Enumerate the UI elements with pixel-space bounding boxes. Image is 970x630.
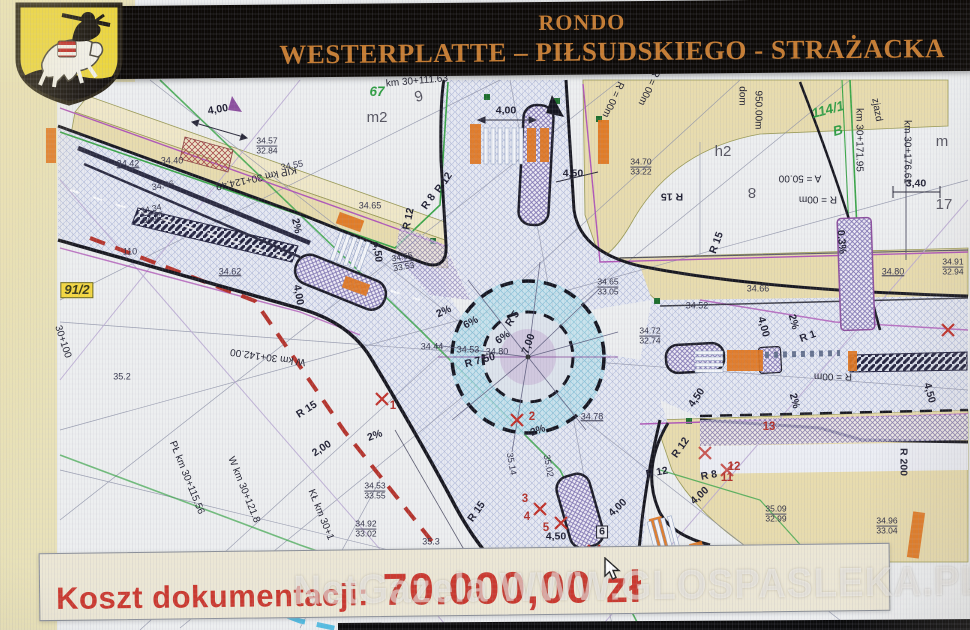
watermark: NetGazela WWW.GLOSPASLEKA.PL	[293, 557, 970, 614]
title-banner: RONDO WESTERPLATTE – PIŁSUDSKIEGO - STRA…	[112, 0, 970, 79]
roundabout-plan-drawing	[0, 0, 970, 630]
photographed-screen: 4,004,004,50R 12R 8R 124,504,002%2%6%6%R…	[0, 0, 970, 630]
city-crest-icon	[12, 1, 126, 107]
page-subtitle: WESTERPLATTE – PIŁSUDSKIEGO - STRAŻACKA	[262, 32, 962, 70]
mouse-cursor	[604, 557, 621, 581]
